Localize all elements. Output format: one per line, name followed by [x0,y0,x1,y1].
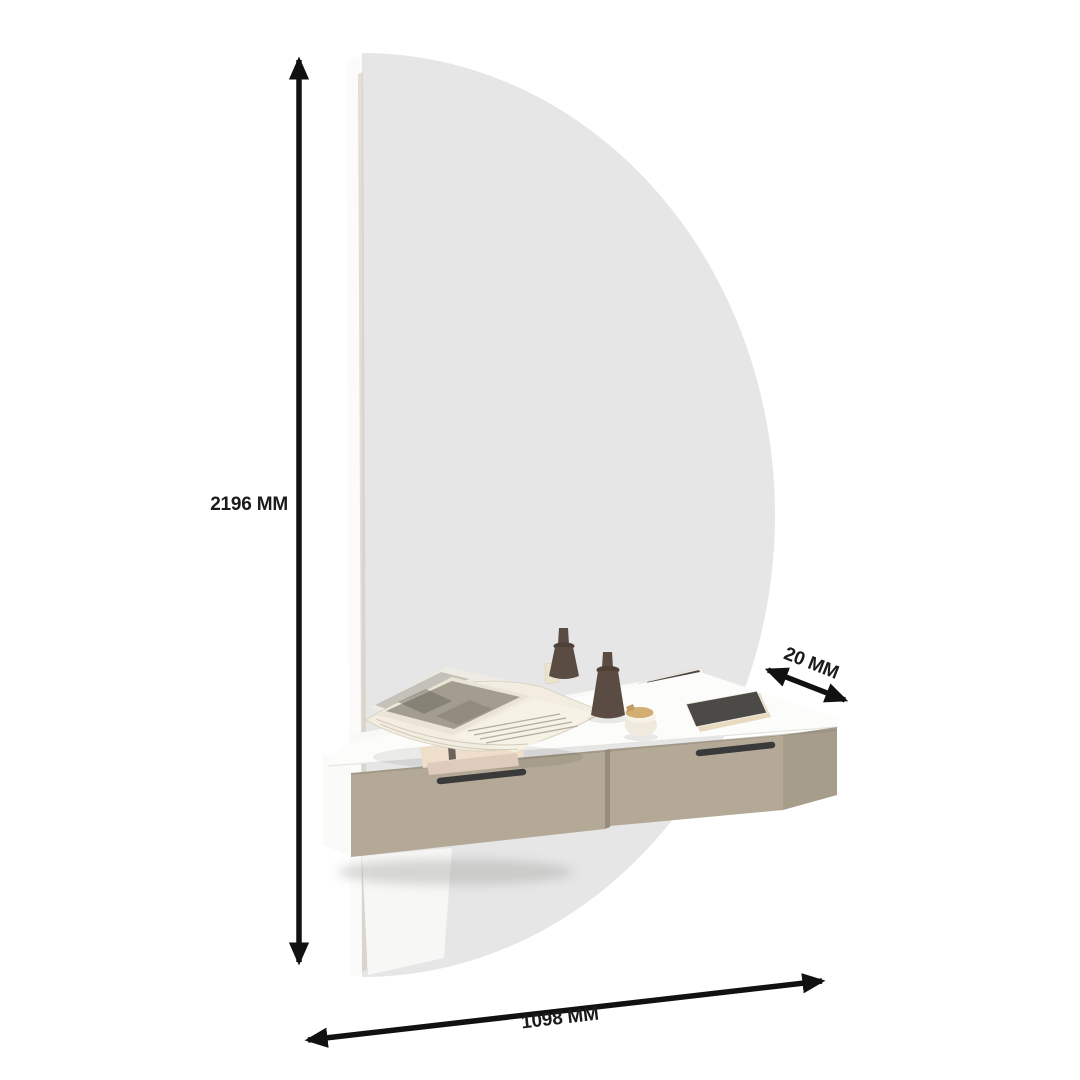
candle-stem [558,628,569,644]
candle-stem [602,652,613,668]
height-dimension-label: 2196 MM [168,492,288,518]
cabinet-left-side [323,753,350,856]
cabinet-shadow [337,859,573,885]
cabinet-right-side [783,727,837,810]
furniture-dimension-diagram: 2196 MM 1098 MM 20 MM [0,0,1080,1080]
scene-canvas [0,0,1080,1080]
drawer-divider-gap [605,749,610,829]
